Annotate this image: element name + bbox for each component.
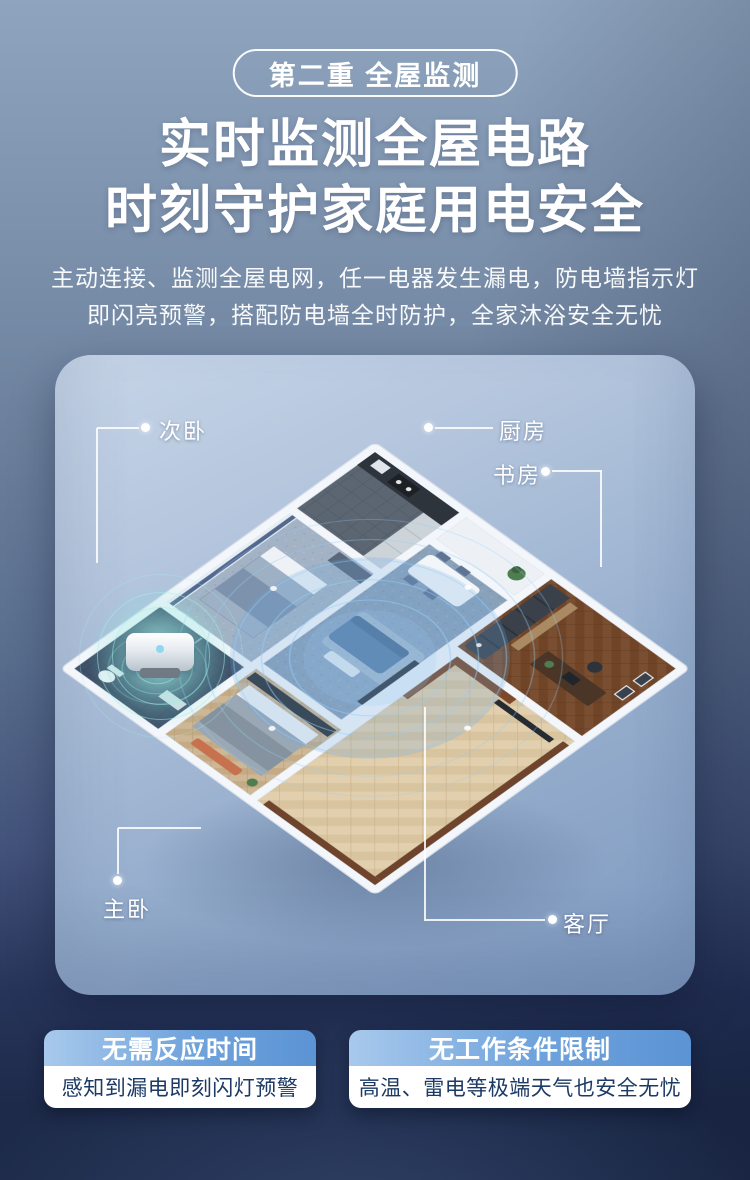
callout-dot-secondary-bedroom [141, 423, 150, 432]
callout-line-master-bedroom [117, 828, 119, 874]
feature-description: 高温、雷电等极端天气也安全无忧 [349, 1066, 691, 1108]
page-title: 实时监测全屋电路 时刻守护家庭用电安全 [0, 112, 750, 244]
callout-line-master-bedroom [118, 827, 201, 829]
feature-cards: 无需反应时间 感知到漏电即刻闪灯预警 无工作条件限制 高温、雷电等极端天气也安全… [44, 1030, 706, 1108]
feature-description: 感知到漏电即刻闪灯预警 [44, 1066, 316, 1108]
room-label-secondary-bedroom: 次卧 [159, 414, 207, 446]
subtitle-line-2: 即闪亮预警，搭配防电墙全时防护，全家沐浴安全无忧 [0, 297, 750, 334]
room-label-living-room: 客厅 [563, 907, 611, 939]
room-label-study: 书房 [493, 458, 541, 490]
subtitle-line-1: 主动连接、监测全屋电网，任一电器发生漏电，防电墙指示灯 [0, 260, 750, 297]
indicator-light [156, 645, 164, 653]
title-line-1: 实时监测全屋电路 [0, 112, 750, 178]
callout-line-study [600, 471, 602, 567]
feature-card-no-condition-limit: 无工作条件限制 高温、雷电等极端天气也安全无忧 [349, 1030, 691, 1108]
section-badge: 第二重 全屋监测 [233, 49, 518, 97]
callout-line-study [552, 470, 602, 472]
callout-line-kitchen [435, 427, 493, 429]
callout-dot-kitchen [424, 423, 433, 432]
callout-line-living-room [424, 707, 426, 921]
callout-line-secondary-bedroom [97, 427, 139, 429]
section-badge-label: 第二重 全屋监测 [269, 54, 482, 93]
room-label-master-bedroom: 主卧 [103, 892, 151, 924]
floorplan-card: 次卧 厨房 书房 主卧 客厅 [55, 355, 695, 995]
feature-card-no-reaction-time: 无需反应时间 感知到漏电即刻闪灯预警 [44, 1030, 316, 1108]
callout-dot-master-bedroom [113, 876, 122, 885]
callout-line-living-room [425, 919, 545, 921]
title-line-2: 时刻守护家庭用电安全 [0, 178, 750, 244]
product-detail-section: 第二重 全屋监测 实时监测全屋电路 时刻守护家庭用电安全 主动连接、监测全屋电网… [0, 0, 750, 1180]
callout-dot-living-room [548, 915, 557, 924]
water-heater-device [88, 583, 232, 727]
control-panel [140, 668, 180, 678]
feature-title: 无工作条件限制 [349, 1030, 691, 1066]
water-heater-body [126, 633, 194, 671]
page-subtitle: 主动连接、监测全屋电网，任一电器发生漏电，防电墙指示灯 即闪亮预警，搭配防电墙全… [0, 260, 750, 334]
callout-line-secondary-bedroom [96, 428, 98, 563]
feature-title: 无需反应时间 [44, 1030, 316, 1066]
callout-dot-study [541, 467, 550, 476]
room-label-kitchen: 厨房 [499, 414, 547, 446]
